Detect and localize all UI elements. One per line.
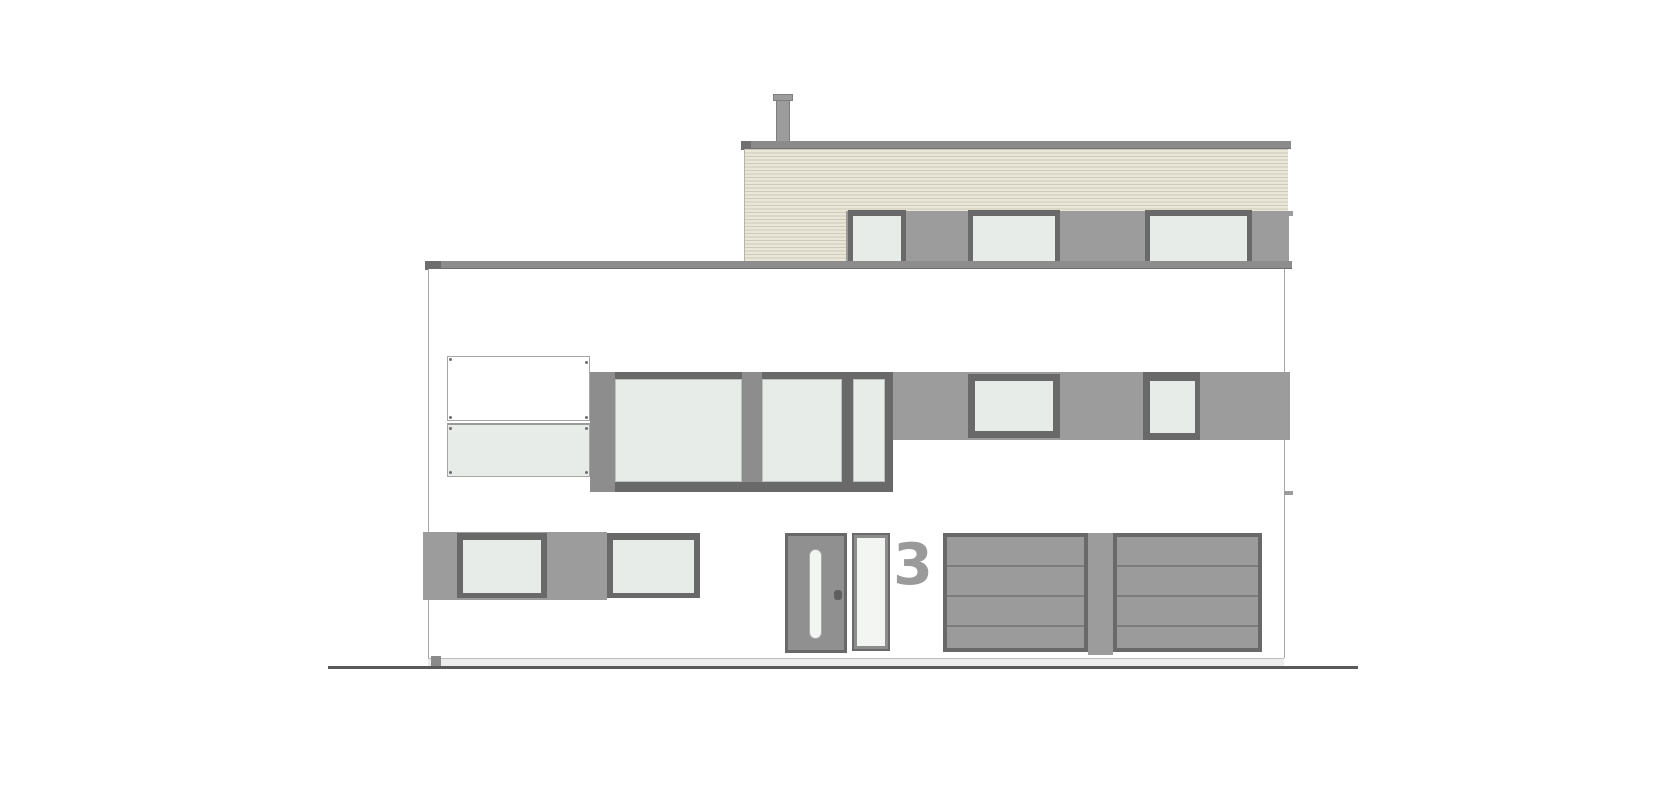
balcony-glass-panel <box>447 423 590 477</box>
front-door <box>785 533 847 653</box>
fixing-dot <box>449 416 452 419</box>
parapet-eave-strip <box>425 261 1292 269</box>
ground-window-1-glass <box>463 540 541 593</box>
fixing-dot <box>585 416 588 419</box>
ground-window-1 <box>457 533 547 598</box>
ground-window-2-glass <box>613 540 694 593</box>
picture-window-right-frame <box>885 372 893 492</box>
attic-window-3 <box>1145 210 1252 261</box>
flat-roof-cap <box>741 141 1291 149</box>
door-handle <box>834 590 842 600</box>
house-number: 3 <box>890 540 936 590</box>
upper-band-window-a <box>968 374 1060 438</box>
attic-window-2-glass <box>973 216 1055 261</box>
fixing-dot <box>449 358 452 361</box>
picture-window-pane-2 <box>762 379 842 482</box>
picture-window-left-pillar <box>590 372 615 492</box>
upper-floor-band <box>893 372 1290 440</box>
fixing-dot <box>449 471 452 474</box>
door-glass-slot <box>809 549 822 639</box>
upper-band-window-a-glass <box>975 381 1053 431</box>
garage-door-left <box>943 533 1088 652</box>
attic-window-3-glass <box>1150 216 1247 261</box>
upper-band-window-b-glass <box>1150 381 1195 433</box>
fixing-dot <box>449 427 452 430</box>
door-sidelight <box>852 533 890 651</box>
fixing-dot <box>585 471 588 474</box>
attic-window-1-glass <box>853 216 901 261</box>
chimney-body <box>776 101 790 141</box>
plinth-strip <box>428 658 1284 666</box>
picture-window-bottom-frame <box>615 482 893 492</box>
attic-window-2 <box>968 210 1060 261</box>
attic-window-1 <box>848 210 906 261</box>
right-edge-ledge <box>1284 491 1293 495</box>
ground-window-2 <box>607 533 700 598</box>
attic-band-right-tip <box>1288 211 1293 216</box>
garage-door-left-slats <box>947 537 1084 648</box>
garage-door-right-slats <box>1117 537 1258 648</box>
fixing-dot <box>585 427 588 430</box>
balcony-parapet-panel <box>447 356 590 421</box>
ground-line <box>328 666 1358 669</box>
fixing-dot <box>585 361 588 364</box>
door-sidelight-glass <box>857 538 885 646</box>
chimney-cap <box>773 94 793 101</box>
garage-divider-pillar <box>1088 533 1113 655</box>
elevation-drawing: 3 <box>0 0 1670 800</box>
picture-window-mullion-1 <box>742 372 762 492</box>
upper-band-window-b <box>1143 372 1200 440</box>
picture-window-mullion-2 <box>842 372 853 492</box>
garage-door-right <box>1113 533 1262 652</box>
picture-window-pane-1 <box>615 379 742 482</box>
picture-window-pane-3 <box>853 379 885 482</box>
